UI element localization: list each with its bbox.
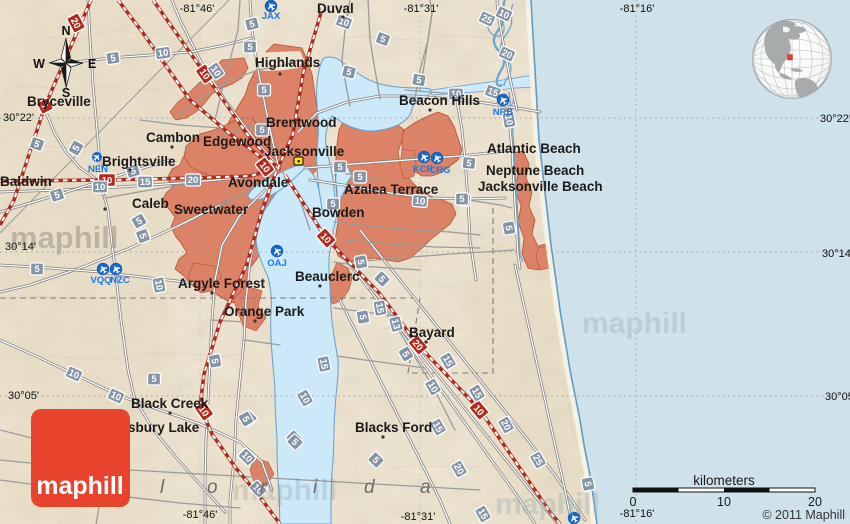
svg-text:Bayard: Bayard (409, 325, 455, 340)
svg-text:© 2011 Maphill: © 2011 Maphill (762, 508, 845, 522)
svg-text:S: S (62, 86, 70, 100)
svg-text:Bowden: Bowden (312, 205, 365, 220)
svg-text:Argyle Forest: Argyle Forest (178, 276, 266, 291)
svg-text:Beauclerc: Beauclerc (295, 269, 360, 284)
svg-text:10: 10 (152, 279, 165, 291)
svg-text:5: 5 (337, 162, 343, 173)
svg-text:5: 5 (34, 264, 40, 275)
svg-text:-81°46': -81°46' (183, 509, 218, 521)
svg-text:5: 5 (247, 42, 253, 53)
svg-text:Jacksonville: Jacksonville (264, 144, 345, 159)
svg-text:kilometers: kilometers (693, 473, 755, 488)
svg-text:Edgewood: Edgewood (203, 134, 271, 149)
svg-text:10: 10 (717, 495, 731, 509)
svg-text:30°14': 30°14' (822, 248, 850, 260)
svg-text:30°05': 30°05' (8, 390, 39, 402)
svg-text:5: 5 (151, 374, 157, 385)
svg-text:15: 15 (140, 177, 151, 188)
svg-text:N: N (61, 24, 70, 38)
svg-text:Sweetwater: Sweetwater (174, 202, 249, 217)
svg-text:30°14': 30°14' (5, 241, 36, 253)
svg-text:NZC: NZC (110, 275, 130, 286)
svg-text:d: d (364, 477, 376, 498)
svg-text:10: 10 (95, 182, 106, 193)
svg-text:5: 5 (459, 194, 465, 205)
svg-text:Avondale: Avondale (228, 175, 289, 190)
svg-text:10: 10 (157, 48, 169, 60)
svg-text:20: 20 (188, 175, 199, 186)
svg-text:W: W (33, 57, 45, 71)
svg-text:Orange Park: Orange Park (224, 304, 305, 319)
svg-text:5: 5 (261, 85, 267, 96)
svg-text:Duval: Duval (317, 1, 354, 16)
svg-text:-81°16': -81°16' (620, 3, 655, 15)
svg-text:CRG: CRG (429, 165, 450, 176)
svg-text:Highlands: Highlands (255, 55, 320, 70)
svg-text:Atlantic Beach: Atlantic Beach (487, 141, 581, 156)
svg-text:Azalea Terrace: Azalea Terrace (344, 182, 439, 197)
svg-text:Neptune Beach: Neptune Beach (486, 163, 584, 178)
svg-text:Blacks Ford: Blacks Ford (355, 420, 432, 435)
svg-text:30°22': 30°22' (820, 113, 850, 125)
svg-text:10: 10 (414, 196, 425, 208)
svg-text:Brentwood: Brentwood (266, 115, 337, 130)
svg-text:Black Creek: Black Creek (131, 396, 209, 411)
svg-text:-81°31': -81°31' (404, 3, 439, 15)
svg-text:Jacksonville Beach: Jacksonville Beach (478, 179, 603, 194)
svg-text:E: E (88, 57, 96, 71)
svg-text:Caleb: Caleb (132, 196, 169, 211)
svg-text:Beacon Hills: Beacon Hills (399, 93, 480, 108)
svg-text:0: 0 (630, 495, 637, 509)
svg-text:-81°46': -81°46' (180, 3, 215, 15)
svg-text:NRB: NRB (493, 107, 514, 118)
svg-text:JAX: JAX (262, 11, 281, 22)
svg-text:a: a (420, 477, 431, 498)
svg-text:maphill: maphill (582, 307, 687, 340)
svg-text:o: o (207, 477, 218, 498)
svg-text:maphill: maphill (495, 488, 600, 521)
svg-text:maphill: maphill (36, 472, 124, 500)
svg-text:Brightsville: Brightsville (102, 154, 176, 169)
svg-text:maphill: maphill (232, 474, 337, 507)
svg-text:Baldwin: Baldwin (0, 174, 52, 189)
svg-text:-81°16': -81°16' (620, 508, 655, 520)
svg-text:OAJ: OAJ (267, 258, 287, 269)
svg-text:30°05': 30°05' (825, 391, 850, 403)
svg-text:Cambon: Cambon (146, 130, 200, 145)
svg-text:Bryceville: Bryceville (27, 94, 91, 109)
svg-text:-81°31': -81°31' (401, 511, 436, 523)
svg-text:30°22': 30°22' (3, 112, 34, 124)
svg-text:20: 20 (808, 495, 822, 509)
svg-text:sbury Lake: sbury Lake (128, 420, 200, 435)
svg-text:VQQ: VQQ (90, 275, 111, 286)
